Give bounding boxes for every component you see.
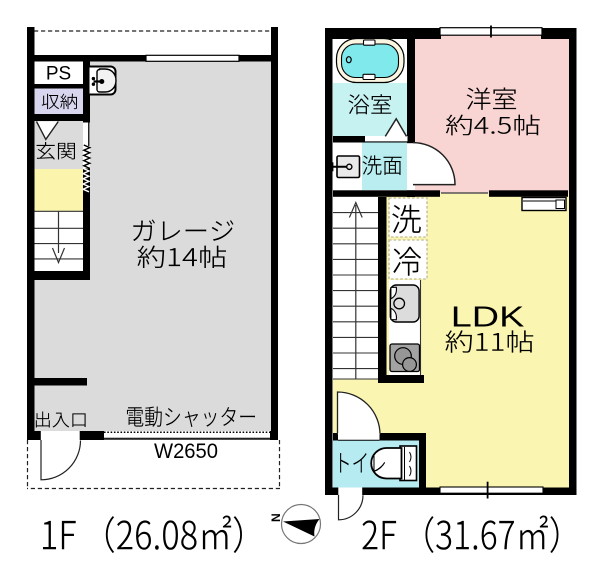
svg-text:LDK: LDK [451,302,525,334]
svg-text:N: N [269,513,283,522]
svg-text:PS: PS [46,64,71,85]
svg-text:W2650: W2650 [154,439,218,463]
